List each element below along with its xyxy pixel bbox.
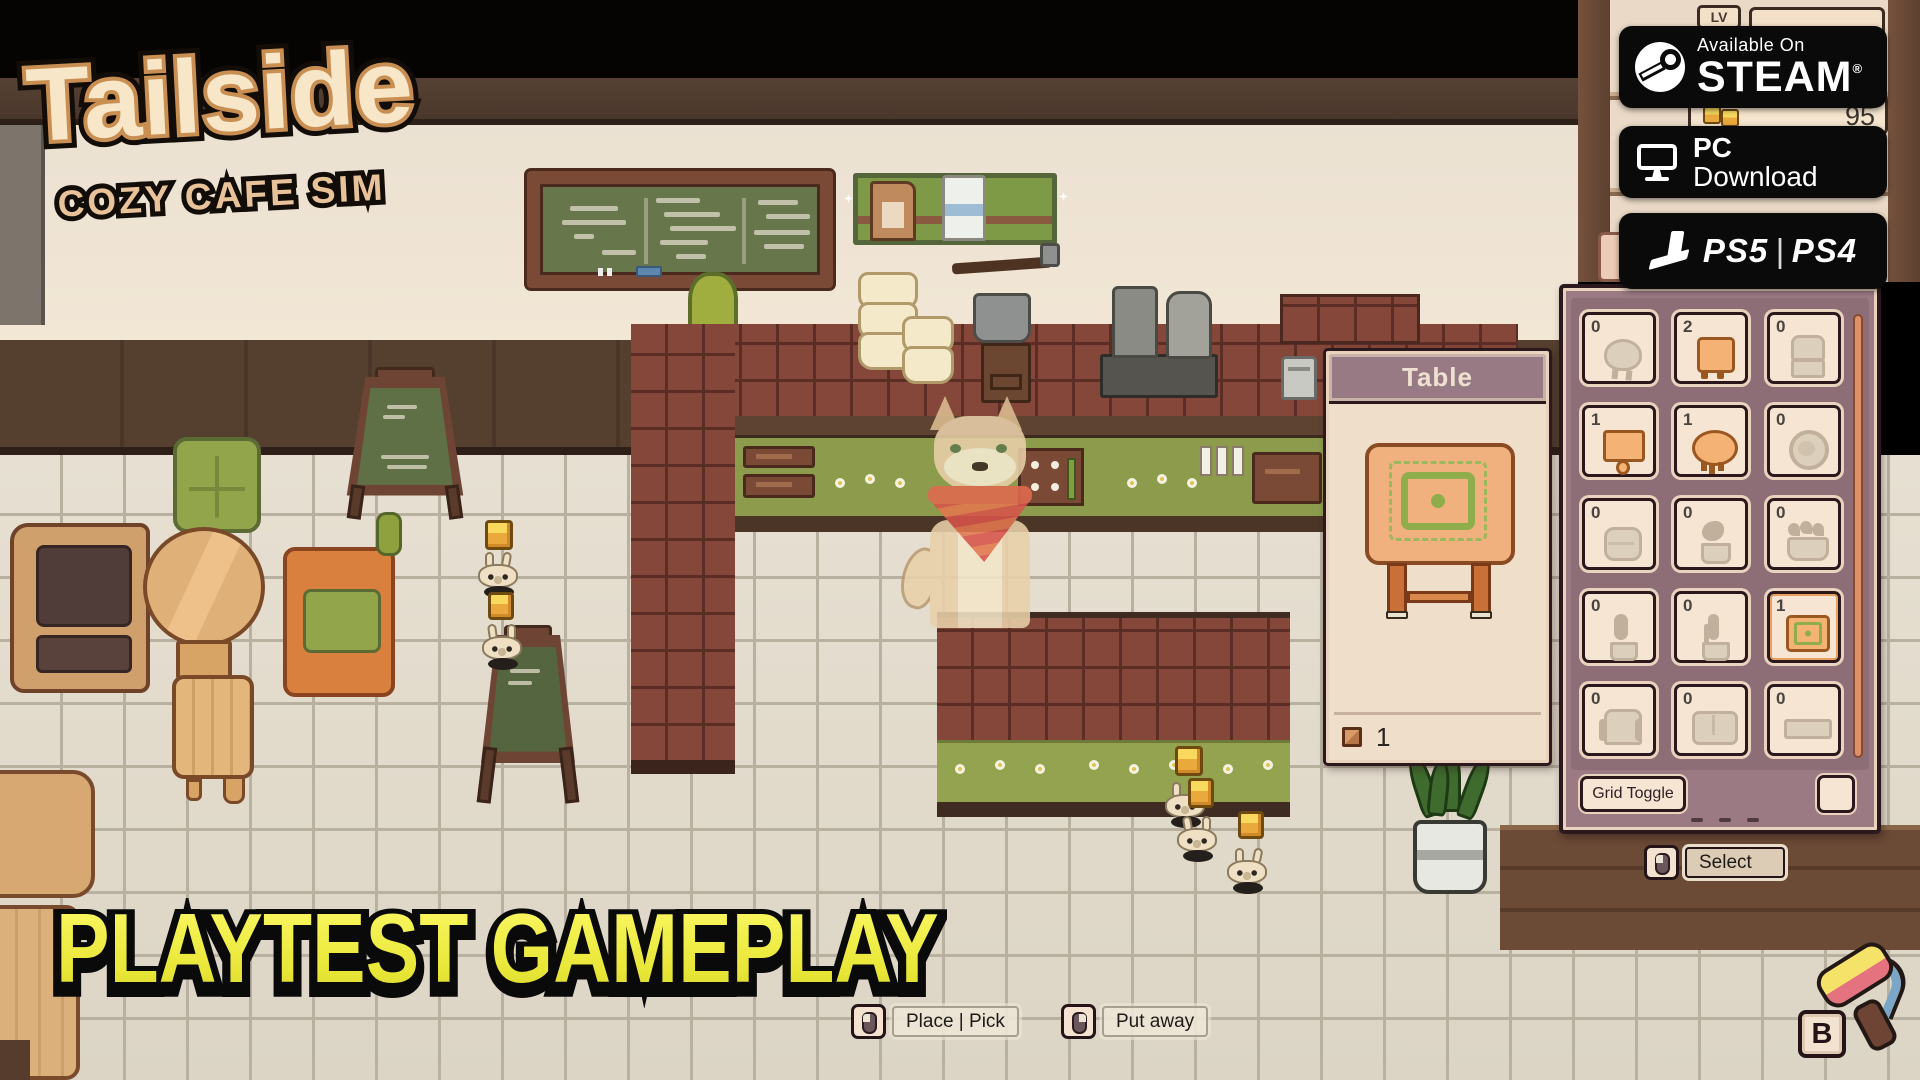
furniture-item-icon — [1598, 335, 1646, 381]
slot-count: 0 — [1683, 596, 1692, 616]
coffee-grinder-base — [981, 343, 1031, 403]
inventory-slot[interactable]: 0 — [1767, 498, 1841, 570]
logo-title: Tailside Tailside Tailside — [23, 21, 529, 177]
playstation-badge[interactable]: PS5 | PS4 — [1619, 213, 1887, 289]
inventory-slot[interactable]: 0 — [1582, 591, 1656, 663]
ps5-label: PS5 — [1703, 232, 1768, 270]
mouse-left-click-icon — [851, 1004, 886, 1039]
inventory-slot[interactable]: 2 — [1674, 312, 1748, 384]
furniture-item-icon — [1783, 428, 1831, 474]
slot-count: 0 — [1591, 503, 1600, 523]
counter-left-column — [631, 324, 735, 774]
chalk-sticks — [598, 268, 603, 276]
furniture-item-icon — [1598, 614, 1646, 660]
furniture-item-icon — [1690, 335, 1738, 381]
wood-counter-right — [1500, 825, 1920, 950]
coffee-grinder-hopper — [973, 293, 1031, 343]
put-away-label: Put away — [1102, 1006, 1208, 1037]
round-table-base — [176, 640, 232, 680]
coin-icon — [1721, 109, 1739, 127]
furniture-item-icon — [1598, 428, 1646, 474]
slot-count: 0 — [1591, 317, 1600, 337]
side-table — [1280, 294, 1420, 344]
monitor-icon — [1635, 140, 1681, 184]
corner-table — [0, 770, 95, 898]
select-hint: Select — [1644, 845, 1785, 880]
butter-reward-icon — [1188, 778, 1214, 808]
inventory-slot[interactable]: 0 — [1767, 684, 1841, 756]
inventory-slot[interactable]: 0 — [1674, 498, 1748, 570]
a-frame-sign — [343, 367, 467, 519]
place-pick-label: Place | Pick — [892, 1006, 1019, 1037]
steam-badge-line1: Available On — [1697, 36, 1863, 54]
inventory-slot[interactable]: 0 — [1674, 684, 1748, 756]
steam-badge-line2: STEAM — [1697, 53, 1853, 101]
slot-count: 0 — [1591, 689, 1600, 709]
bunny-customer — [1227, 848, 1269, 894]
inventory-slot[interactable]: 0 — [1674, 591, 1748, 663]
inventory-slot[interactable]: 0 — [1582, 684, 1656, 756]
potted-plant-large — [1385, 752, 1513, 894]
inventory-slot[interactable]: 0 — [1582, 312, 1656, 384]
kettle — [1166, 291, 1212, 359]
playtest-watermark: PLAYTEST GAMEPLAY PLAYTEST GAMEPLAY — [56, 892, 1056, 1002]
slot-count: 1 — [1591, 410, 1600, 430]
furniture-item-icon — [1783, 614, 1831, 660]
armchair-dark — [10, 523, 150, 693]
slot-count: 0 — [1683, 689, 1692, 709]
slot-count: 0 — [1683, 503, 1692, 523]
slot-count: 2 — [1683, 317, 1692, 337]
furniture-item-icon — [1598, 521, 1646, 567]
corner-shadow — [0, 1040, 30, 1080]
furniture-box-icon — [1342, 727, 1362, 747]
coin-icon — [1703, 106, 1721, 124]
popup-item-count: 1 — [1376, 722, 1390, 753]
table-preview-image — [1365, 443, 1515, 658]
coffee-grinder-knob — [1040, 243, 1060, 267]
fox-barista-character — [922, 402, 1038, 630]
slot-count: 0 — [1776, 503, 1785, 523]
slot-count: 1 — [1683, 410, 1692, 430]
mouse-left-click-icon — [1644, 845, 1679, 880]
wooden-stool — [172, 675, 254, 779]
pc-download-badge[interactable]: PC Download — [1619, 126, 1887, 198]
pc-badge-line2: Download — [1693, 162, 1818, 191]
wood-plaque — [1252, 452, 1322, 504]
pc-badge-line1: PC — [1693, 133, 1818, 162]
espresso-station — [1100, 354, 1218, 398]
furniture-item-icon — [1783, 335, 1831, 381]
paint-tool-shortcut: B — [1798, 952, 1918, 1074]
furniture-inventory-panel: 0 2 0 1 1 0 0 0 0 0 0 1 0 0 0 Grid Toggl… — [1559, 284, 1881, 834]
wall-shelf — [853, 173, 1057, 245]
ps-divider: | — [1775, 232, 1785, 270]
butter-reward-icon — [485, 520, 513, 550]
select-label: Select — [1685, 847, 1785, 878]
playstation-icon — [1649, 229, 1693, 273]
steam-icon — [1633, 40, 1687, 94]
slot-count: 0 — [1591, 596, 1600, 616]
registered-mark: ® — [1853, 61, 1864, 76]
game-logo: Tailside Tailside Tailside COZY CAFE SIM… — [23, 21, 532, 235]
steam-badge[interactable]: Available On STEAM® — [1619, 26, 1887, 108]
slot-count: 1 — [1776, 596, 1785, 616]
inventory-slot[interactable]: 0 — [1767, 312, 1841, 384]
furniture-item-icon — [1783, 521, 1831, 567]
wood-plaque — [743, 474, 815, 498]
inventory-scrollbar[interactable] — [1853, 314, 1863, 758]
game-screenshot: Table 1 0 2 0 1 1 0 0 0 0 0 0 1 0 0 0 Gr… — [0, 0, 1920, 1080]
inventory-slot-selected[interactable]: 1 — [1767, 591, 1841, 663]
butter-reward-icon — [1175, 746, 1203, 776]
cup-stack — [902, 316, 954, 384]
milk-can — [1281, 356, 1317, 400]
furniture-item-icon — [1690, 428, 1738, 474]
stool-feet — [186, 779, 202, 801]
grid-toggle-button[interactable]: Grid Toggle — [1580, 776, 1686, 812]
furniture-item-icon — [1783, 707, 1831, 753]
popup-title: Table — [1329, 354, 1546, 404]
bunny-customer — [482, 624, 524, 670]
empty-toggle-checkbox[interactable] — [1817, 775, 1855, 813]
milk-carton — [942, 175, 986, 241]
coffee-bag — [870, 181, 916, 241]
b-key-badge: B — [1798, 1010, 1846, 1058]
menu-chalkboard — [527, 171, 833, 288]
slot-count: 0 — [1776, 410, 1785, 430]
butter-reward-icon — [1238, 811, 1264, 839]
put-away-hint: Put away — [1061, 1004, 1208, 1039]
furniture-item-icon — [1690, 614, 1738, 660]
round-table — [143, 527, 265, 647]
mouse-right-click-icon — [1061, 1004, 1096, 1039]
wood-plaque — [743, 446, 815, 468]
menu-stand — [1200, 446, 1250, 478]
inventory-slot[interactable]: 1 — [1582, 405, 1656, 477]
place-pick-hint: Place | Pick — [851, 1004, 1019, 1039]
inventory-slot[interactable]: 0 — [1767, 405, 1841, 477]
front-counter — [937, 612, 1290, 817]
bunny-customer — [1177, 816, 1219, 862]
item-preview-popup: Table 1 — [1323, 348, 1552, 766]
slot-count: 0 — [1776, 317, 1785, 337]
page-dots — [1691, 818, 1759, 822]
butter-reward-icon — [488, 592, 514, 620]
chalk-eraser — [636, 266, 662, 277]
ps4-label: PS4 — [1792, 232, 1857, 270]
furniture-item-icon — [1598, 707, 1646, 753]
espresso-machine — [1112, 286, 1158, 358]
furniture-item-icon — [1690, 521, 1738, 567]
green-cushion-chair — [173, 437, 261, 533]
wainscot-left — [0, 340, 631, 455]
slot-count: 0 — [1776, 689, 1785, 709]
furniture-item-icon — [1690, 707, 1738, 753]
booth-seat — [283, 547, 395, 697]
inventory-slot[interactable]: 0 — [1582, 498, 1656, 570]
inventory-slot[interactable]: 1 — [1674, 405, 1748, 477]
small-cactus — [376, 512, 402, 556]
